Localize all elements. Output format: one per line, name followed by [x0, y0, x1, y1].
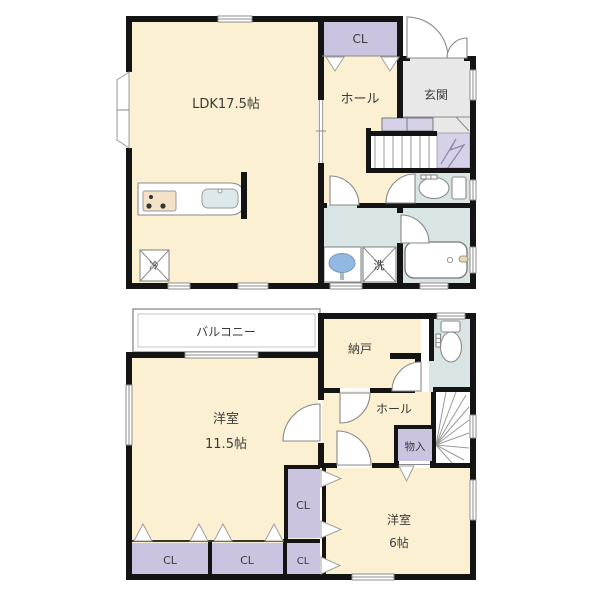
label-hall-1f: ホール: [340, 92, 379, 107]
label-closet-right: CL: [296, 499, 311, 512]
stairs-2f: [436, 392, 470, 463]
window: [437, 313, 465, 319]
entrance-child-door-arc: [447, 38, 467, 58]
bay-window: [117, 72, 129, 148]
label-bedroom2: 洋室: [387, 512, 411, 527]
window: [168, 283, 190, 289]
room-ldk: [129, 19, 322, 286]
vanity-sink: [324, 247, 361, 282]
window: [352, 574, 394, 580]
floor2: バルコニー 納戸 ホール 洋室 11.5帖 物入 CL CL CL CL 洋室 …: [126, 309, 476, 580]
label-bedroom2-size: 6帖: [389, 535, 409, 550]
label-closet-left: CL: [163, 554, 178, 567]
stove-burner: [160, 203, 165, 208]
label-balcony: バルコニー: [196, 325, 256, 339]
label-storage-box: 物入: [405, 440, 426, 453]
window: [470, 480, 476, 520]
bathtub: [405, 242, 468, 278]
window: [185, 352, 258, 358]
window: [470, 180, 476, 200]
label-entrance: 玄関: [424, 87, 448, 102]
floor1: LDK17.5帖 CL ホール 玄関 洗 冷: [117, 16, 476, 289]
label-refrigerator: 冷: [149, 260, 159, 272]
window: [218, 16, 252, 22]
window: [126, 385, 132, 445]
label-laundry: 洗: [374, 259, 385, 272]
window: [238, 283, 268, 289]
toilet-2f-nook: [421, 359, 429, 392]
stove-burner: [146, 203, 151, 208]
floorplan-svg: LDK17.5帖 CL ホール 玄関 洗 冷: [0, 0, 600, 600]
stove-burner: [149, 195, 153, 199]
label-closet-small: CL: [297, 556, 310, 567]
stairs-1f: [371, 136, 437, 168]
window: [470, 415, 476, 438]
window: [330, 283, 362, 289]
kitchen-wall-stub: [241, 172, 247, 219]
faucet-icon: [218, 189, 222, 193]
label-bedroom1: 洋室: [213, 411, 239, 427]
label-closet-1f: CL: [352, 32, 367, 46]
label-closet-mid: CL: [240, 554, 255, 567]
label-ldk: LDK17.5帖: [192, 97, 260, 112]
window: [420, 283, 448, 289]
window: [470, 247, 476, 273]
entrance-door-arc: [407, 17, 448, 58]
label-bedroom1-size: 11.5帖: [205, 437, 247, 452]
label-storage: 納戸: [348, 342, 372, 356]
floorplan-page: LDK17.5帖 CL ホール 玄関 洗 冷: [0, 0, 600, 600]
window: [470, 70, 476, 100]
label-hall-2f: ホール: [376, 402, 412, 416]
